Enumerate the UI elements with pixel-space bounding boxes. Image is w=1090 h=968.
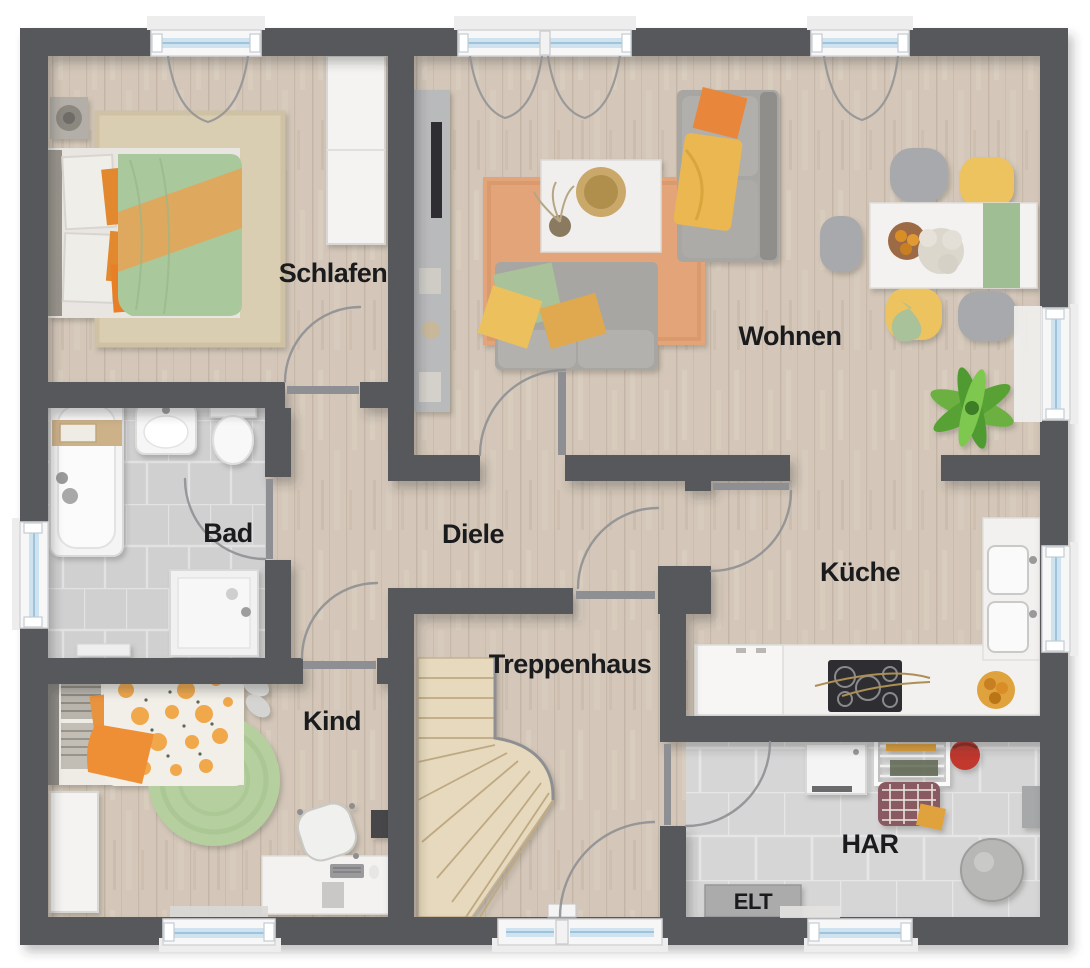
label-har: HAR bbox=[842, 829, 899, 859]
kids-bed bbox=[48, 667, 244, 786]
window-bathroom bbox=[12, 518, 48, 630]
window-sill bbox=[1014, 306, 1042, 422]
window-sill bbox=[780, 906, 840, 918]
kids-wardrobe bbox=[50, 792, 98, 912]
wall-living-kitchen bbox=[695, 455, 790, 481]
faucet bbox=[1029, 556, 1037, 564]
sofa-vertical bbox=[673, 87, 779, 262]
label-kueche: Küche bbox=[820, 557, 901, 587]
double-bed bbox=[48, 148, 242, 318]
label-wohnen: Wohnen bbox=[739, 321, 842, 351]
label-schlafen: Schlafen bbox=[279, 258, 388, 288]
window-kitchen bbox=[1042, 542, 1078, 656]
label-bad: Bad bbox=[203, 518, 253, 548]
laundry-basket bbox=[878, 782, 946, 830]
shower-drain bbox=[226, 588, 238, 600]
mouse bbox=[369, 865, 379, 879]
label-diele: Diele bbox=[442, 519, 505, 549]
wall-kidsroom-stairs bbox=[388, 614, 414, 917]
vase bbox=[422, 321, 440, 339]
books bbox=[419, 372, 441, 402]
wall-stairs-kitchen bbox=[660, 614, 686, 742]
bath-faucet bbox=[56, 472, 68, 484]
floor-plan: Schlafen Wohnen Bad Diele Küche Kind Tre… bbox=[0, 0, 1090, 968]
dining-chair-gray bbox=[820, 216, 862, 272]
door-handle-unit bbox=[548, 904, 576, 917]
dining-chair-gray bbox=[890, 148, 948, 202]
toilet bbox=[213, 416, 253, 464]
wall-hall-kidsroom bbox=[48, 658, 303, 684]
dining-chair-yellow bbox=[960, 157, 1014, 207]
clothes bbox=[890, 760, 938, 776]
tv bbox=[431, 122, 442, 218]
floor-plan-canvas: Schlafen Wohnen Bad Diele Küche Kind Tre… bbox=[0, 0, 1090, 968]
wall-kitchen-utility bbox=[686, 716, 1040, 742]
window-living bbox=[1014, 304, 1078, 424]
table-runner bbox=[983, 203, 1020, 288]
books bbox=[419, 268, 441, 294]
label-treppenhaus: Treppenhaus bbox=[489, 649, 652, 679]
keyboard bbox=[330, 864, 364, 878]
fridge bbox=[697, 645, 783, 715]
water-tank bbox=[961, 839, 1023, 901]
coffee-table bbox=[534, 160, 661, 252]
sofa-horizontal bbox=[478, 262, 658, 370]
wall-hall-stairs bbox=[388, 588, 573, 614]
towel-radiator bbox=[77, 644, 130, 656]
faucet bbox=[1029, 610, 1037, 618]
label-kind: Kind bbox=[303, 706, 361, 736]
wall-bedroom-living bbox=[388, 56, 414, 481]
wall-bath-hall bbox=[265, 408, 291, 477]
pc-tower bbox=[322, 882, 344, 908]
radiator bbox=[170, 906, 268, 917]
shower-fitting bbox=[241, 607, 251, 617]
wall-bedroom-bath bbox=[48, 382, 285, 408]
wall-hall-living bbox=[414, 455, 480, 481]
wall-shelf bbox=[371, 810, 390, 838]
towel bbox=[886, 744, 936, 751]
sink-basin bbox=[988, 546, 1028, 594]
window-kidsroom bbox=[159, 906, 281, 952]
sink-basin bbox=[988, 602, 1028, 652]
label-elt: ELT bbox=[734, 889, 773, 914]
wall-unit bbox=[1022, 786, 1040, 828]
dining-chair-gray bbox=[958, 291, 1016, 341]
